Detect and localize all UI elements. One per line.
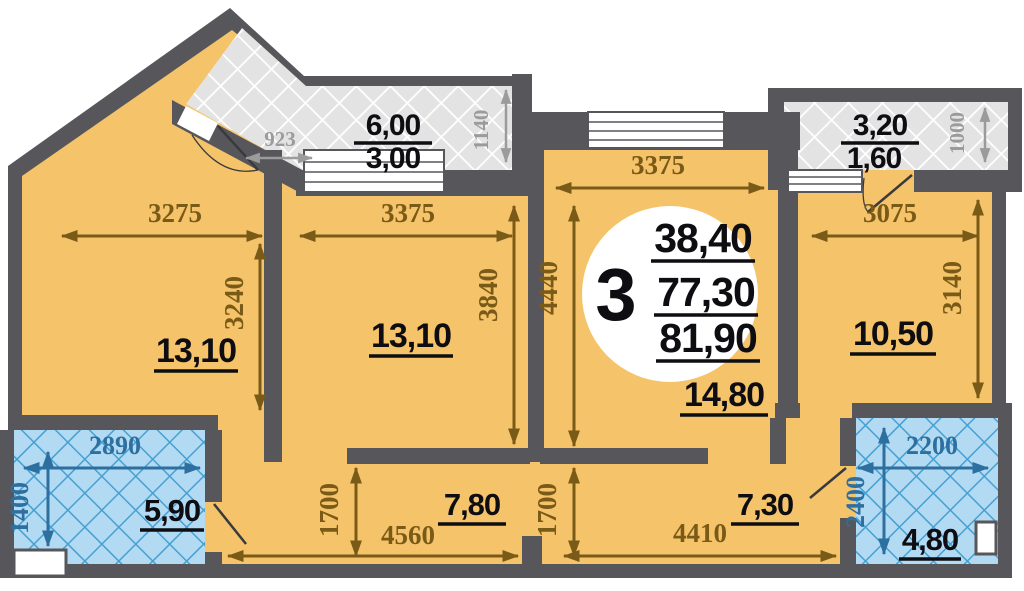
dim-room-middle-width: 3375	[381, 198, 435, 228]
dim-corridor-right-height: 1700	[532, 483, 562, 537]
dim-room-living-height: 4440	[533, 261, 563, 315]
dim-bathroom-left-width: 2890	[89, 431, 141, 460]
dim-corridor-right-width: 4410	[673, 518, 727, 548]
badge-area-living: 38,40	[654, 215, 752, 261]
room-label-bath-left: 5,90	[144, 493, 200, 528]
dim-bathroom-right-height: 2400	[841, 476, 870, 528]
window-living	[588, 112, 724, 148]
dim-room-left-height: 3240	[219, 276, 249, 330]
badge-area-total: 81,90	[659, 315, 757, 361]
shaft-bottom-left	[14, 550, 66, 576]
room-label-balcony-right-counted: 1,60	[847, 142, 902, 175]
wall-corridor-top-b	[540, 448, 708, 464]
floor-plan-canvas: 3275 3240 3375 3840 3375 4440 3075 3140 …	[0, 0, 1024, 591]
dim-room-left-width: 3275	[148, 198, 202, 228]
wall-corridor-bottom-stub	[522, 536, 542, 578]
dim-room-right-height: 3140	[937, 261, 967, 315]
room-label-living: 14,80	[684, 376, 764, 414]
floor-plan: 3275 3240 3375 3840 3375 4440 3075 3140 …	[0, 0, 1024, 591]
dim-balcony-right-depth: 1000	[945, 112, 969, 154]
room-label-middle: 13,10	[371, 317, 451, 355]
shaft-bottom-right	[976, 522, 996, 554]
dim-bathroom-right-width: 2200	[906, 431, 958, 460]
wall-left-middle-divider	[264, 150, 282, 462]
dim-corridor-left-height: 1700	[314, 483, 344, 537]
room-label-bath-right: 4,80	[902, 522, 958, 557]
dim-balcony-top-depth: 1140	[469, 110, 493, 151]
wall-bathroom-left-top	[8, 415, 218, 430]
dim-corridor-left-width: 4560	[381, 520, 435, 550]
badge-rooms-count: 3	[595, 253, 636, 336]
dim-room-living-width: 3375	[631, 150, 685, 180]
room-label-balcony-top-total: 6,00	[366, 109, 421, 142]
door-opening-room-right	[800, 403, 852, 418]
badge-area-reduced: 77,30	[657, 269, 755, 315]
room-label-left: 13,10	[156, 332, 236, 370]
room-label-corridor-right: 7,30	[737, 487, 793, 522]
summary-badge: 3 38,40 77,30 81,90	[582, 206, 760, 382]
dim-bathroom-left-height: 1400	[5, 482, 34, 534]
wall-corridor-top-a	[347, 448, 530, 464]
dim-balcony-top-side: 923	[264, 127, 296, 151]
room-label-corridor-left: 7,80	[444, 487, 500, 522]
dim-room-middle-height: 3840	[473, 268, 503, 322]
room-label-right: 10,50	[853, 315, 933, 353]
wall-corridor-right-stub	[770, 418, 786, 464]
dim-room-right-width: 3075	[863, 198, 917, 228]
room-label-balcony-top-counted: 3,00	[366, 142, 421, 175]
room-label-balcony-right-total: 3,20	[853, 109, 908, 142]
